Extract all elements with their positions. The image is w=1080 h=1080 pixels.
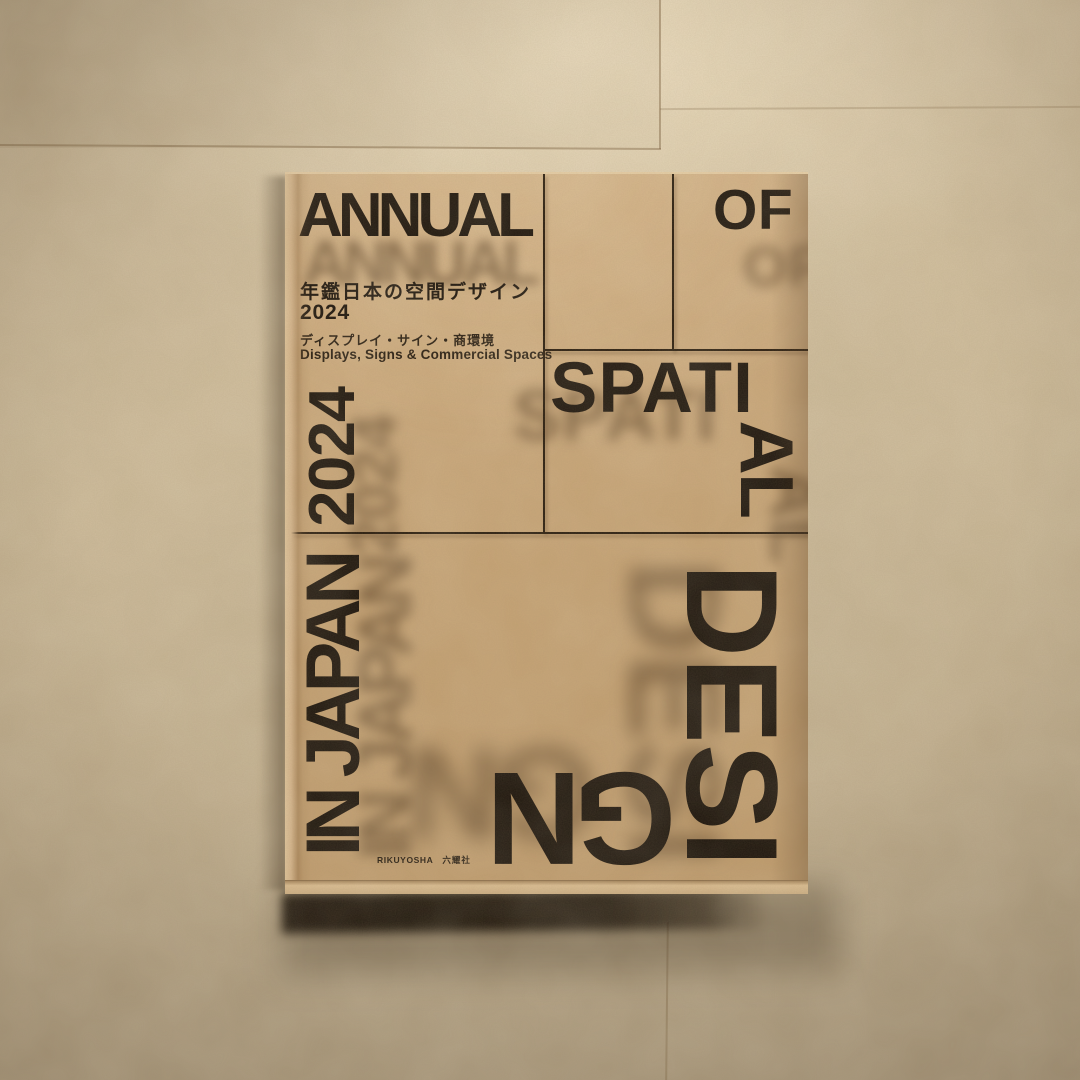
book-shadow-bottom (282, 888, 768, 933)
publisher-name-en: RIKUYOSHA (377, 855, 433, 865)
edition-year: 2024 (300, 301, 350, 325)
tile-shading (0, 0, 660, 148)
cover-grid-line-vertical-2 (672, 174, 674, 350)
tile-grout-vertical-top (659, 0, 661, 149)
book-bottom-board-edge (285, 880, 808, 894)
word-of-ghost: OF (743, 239, 808, 296)
word-gn: GN (489, 750, 681, 880)
cover-grid-line-horizontal-2 (285, 532, 808, 534)
book: ANNUAL OF 2024 SPATI AL IN JAPAN DESI GN… (285, 172, 808, 894)
publisher-name-jp: 六耀社 (442, 855, 471, 865)
word-of: OF (713, 182, 793, 239)
tile-grout-horizontal-right (660, 106, 1080, 110)
photo-scene: ANNUAL OF 2024 SPATI AL IN JAPAN DESI GN… (0, 0, 1080, 1080)
book-shadow-left (259, 176, 287, 890)
word-annual: ANNUAL (298, 185, 530, 247)
word-al: AL (728, 416, 806, 522)
book-front-cover: ANNUAL OF 2024 SPATI AL IN JAPAN DESI GN… (285, 172, 808, 880)
word-desi: DESI (666, 562, 798, 868)
word-spati: SPATI (550, 353, 754, 424)
english-subtitle: Displays, Signs & Commercial Spaces (300, 347, 552, 362)
word-in-japan: IN JAPAN (294, 548, 374, 864)
publisher-line: RIKUYOSHA六耀社 (377, 854, 471, 866)
japanese-title: 年鑑日本の空間デザイン (300, 277, 531, 304)
vertical-year: 2024 (299, 382, 365, 532)
